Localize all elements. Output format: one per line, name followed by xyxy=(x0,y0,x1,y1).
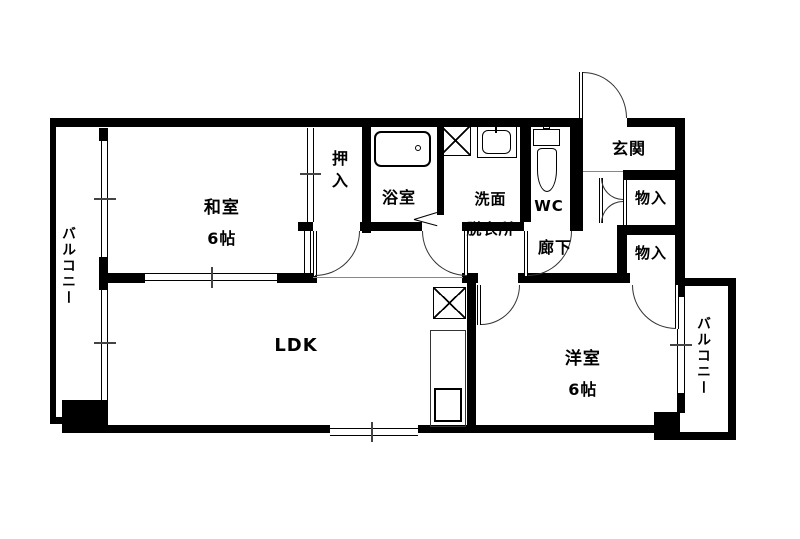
sliding-door-washitsu-hall xyxy=(304,231,311,273)
pillar-bottom-left xyxy=(62,400,108,433)
room-label-line: 脱衣所 xyxy=(466,220,514,238)
wall-balcony-right-bottom xyxy=(654,432,736,440)
bathtub-drain-icon xyxy=(415,145,421,151)
wall-oshiire-yokushitsu xyxy=(362,118,371,233)
room-label-senmen: 洗面 脱衣所 xyxy=(438,177,518,252)
sliding-door-tick xyxy=(211,267,213,288)
room-label-yoshitsu: 洋室 6帖 xyxy=(510,337,628,413)
toilet-bowl-icon xyxy=(537,148,557,192)
washbasin-tap-icon xyxy=(495,122,497,133)
toilet-tank-icon xyxy=(533,129,560,146)
room-label-washitsu: 和室 6帖 xyxy=(148,186,268,262)
wall-bottom-ldk xyxy=(108,425,330,433)
floor-plan: バルコニー 和室 6帖 押入 浴室 洗面 脱衣所 WC 玄関 物入 物入 廊下 … xyxy=(0,0,800,539)
door-arc-genkan xyxy=(583,72,627,118)
room-label-rouka: 廊下 xyxy=(524,240,586,256)
wall-washitsu-ldk-east xyxy=(277,273,317,283)
sliding-door-tick xyxy=(300,173,321,175)
room-size: 6帖 xyxy=(568,380,597,399)
room-name: 和室 xyxy=(204,198,240,218)
room-label-monoire-lower: 物入 xyxy=(620,246,682,261)
wall-balcony-right-outer xyxy=(728,278,736,440)
room-label-yokushitsu: 浴室 xyxy=(366,190,432,206)
room-label-line: 洗面 xyxy=(474,190,506,208)
room-label-ldk: LDK xyxy=(265,337,327,355)
toilet-handle-icon xyxy=(543,123,550,129)
window-tick xyxy=(670,344,692,346)
window-ldk-south xyxy=(330,428,418,436)
kitchen-sink-icon xyxy=(434,388,462,422)
hall-ldk-boundary-line xyxy=(313,277,463,278)
room-label-genkan: 玄関 xyxy=(594,141,664,157)
wall-stub-right-lower xyxy=(677,393,685,413)
window-ldk-west xyxy=(101,290,108,400)
washbasin-bowl-icon xyxy=(482,130,511,154)
window-tick xyxy=(94,342,116,344)
pillar-bottom-right xyxy=(654,412,680,433)
room-label-balcony-left: バルコニー xyxy=(61,226,75,306)
room-size: 6帖 xyxy=(207,229,236,248)
room-label-monoire-upper: 物入 xyxy=(620,191,682,206)
genkan-step-line xyxy=(583,171,623,172)
wall-genkan-south xyxy=(623,170,685,180)
washing-machine-pan-icon xyxy=(440,125,471,156)
wall-wc-genkan xyxy=(570,118,583,231)
refrigerator-space-icon xyxy=(433,287,466,319)
wall-balcony-left-outer xyxy=(50,118,56,424)
wall-balcony-right-top xyxy=(677,278,736,286)
room-label-oshiire: 押入 xyxy=(330,150,346,194)
door-arc-hall-west xyxy=(315,231,360,276)
wall-stub-left-top xyxy=(99,128,108,141)
door-arc-monoire-lower xyxy=(632,285,676,329)
wall-washitsu-ldk-west xyxy=(102,273,145,283)
room-name: 洋室 xyxy=(565,349,601,369)
door-arc-yoshitsu xyxy=(481,285,520,325)
window-tick xyxy=(371,422,373,442)
wall-ldk-yoshitsu-divider xyxy=(467,277,476,433)
room-label-wc: WC xyxy=(526,199,572,214)
room-label-balcony-right: バルコニー xyxy=(696,316,710,396)
wall-monoire-divider xyxy=(617,225,677,235)
window-tick xyxy=(94,198,116,200)
wall-hall-north-a xyxy=(298,222,313,231)
sliding-door-oshiire xyxy=(307,128,314,222)
bathtub-icon xyxy=(374,131,431,167)
